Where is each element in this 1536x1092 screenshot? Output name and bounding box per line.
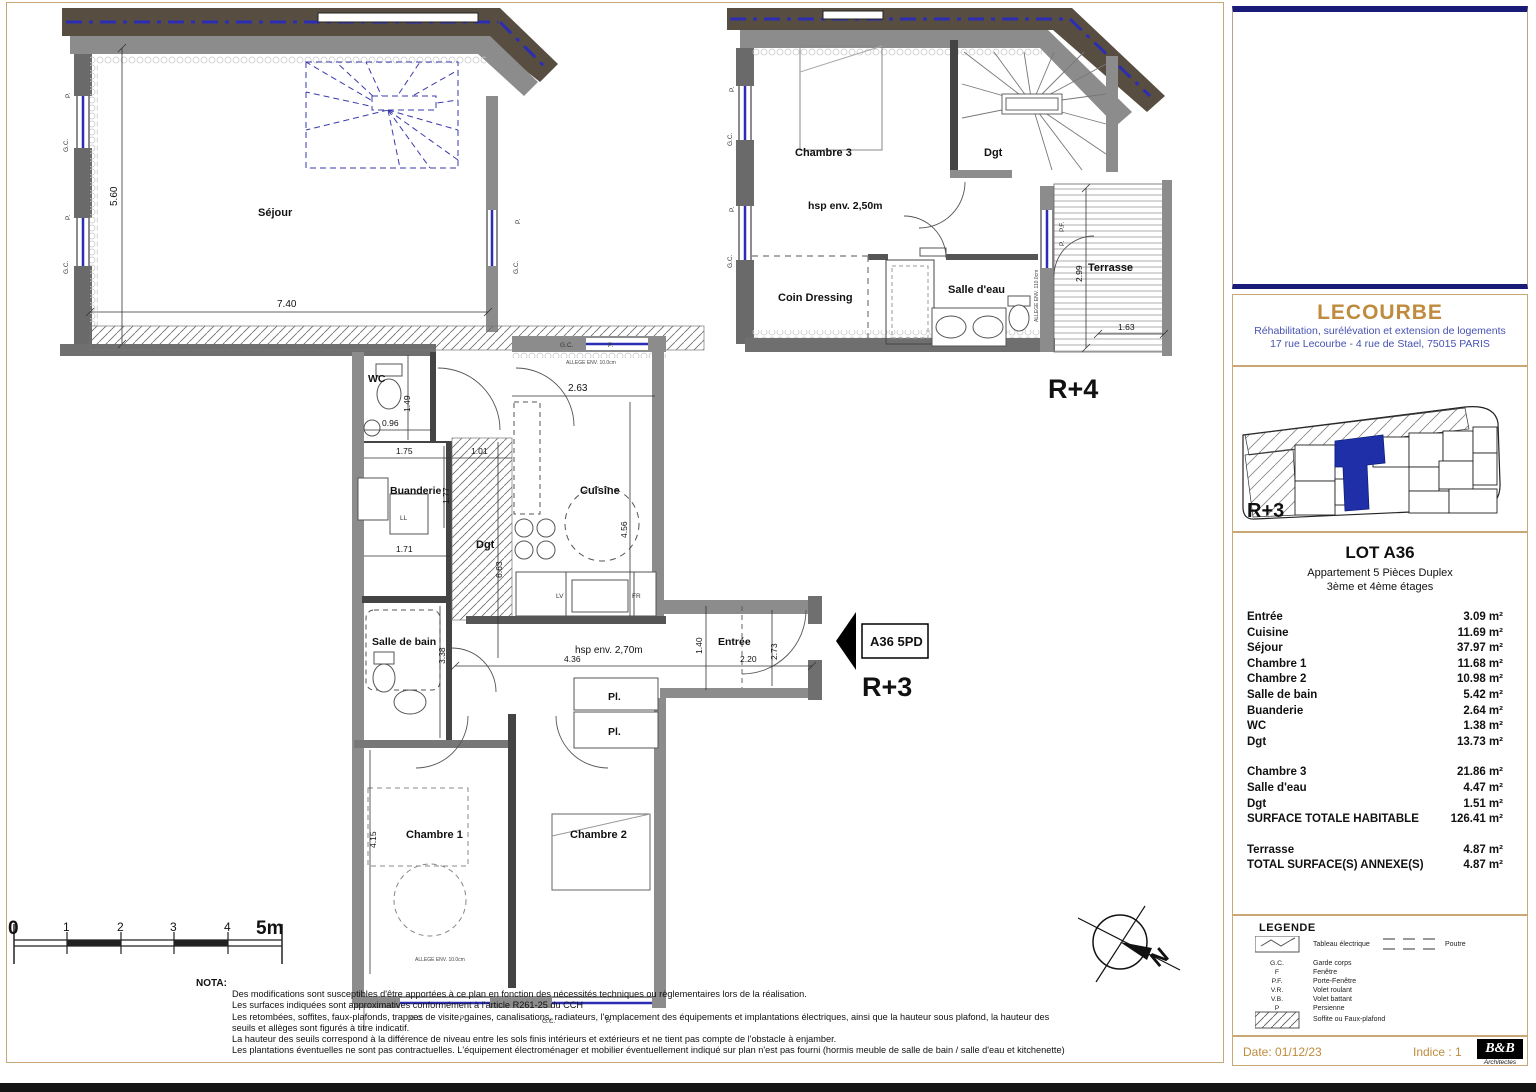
nota-line: Les surfaces indiquées sont approximativ…: [232, 1000, 1226, 1011]
room-label-sdb: Salle de bain: [372, 636, 436, 648]
table-row: Buanderie2.64 m²: [1233, 704, 1527, 720]
p-label-r4-w2: P.: [729, 207, 736, 212]
compass-rose: N: [1078, 906, 1180, 982]
dim-140: 1.40: [694, 637, 704, 654]
scale-0: 0: [8, 918, 19, 939]
project-title-box: LECOURBE Réhabilitation, surélévation et…: [1232, 294, 1528, 366]
room-name: Salle de bain: [1247, 688, 1317, 704]
pf-label-terrasse: P.F.: [1059, 221, 1066, 232]
dim-415: 4.15: [368, 831, 378, 848]
dim-273: 2.73: [769, 643, 779, 660]
table-row: Chambre 111.68 m²: [1233, 657, 1527, 673]
dim-299: 2.99: [1074, 265, 1084, 282]
room-name: Chambre 1: [1247, 657, 1306, 673]
legend-poutre: Poutre: [1445, 941, 1466, 948]
keyplan-drawing: R+3: [1233, 367, 1526, 530]
total-label: TOTAL SURFACE(S) ANNEXE(S): [1247, 858, 1424, 874]
gc-label-w3: G.C.: [513, 260, 520, 274]
footer-bar: Date: 01/12/23 Indice : 1 B&B Architecte…: [1232, 1036, 1528, 1066]
nota-line: Des modifications sont susceptibles d'êt…: [232, 989, 1226, 1000]
room-name: Séjour: [1247, 641, 1283, 657]
r4-level-label: R+4: [1048, 374, 1098, 404]
room-name: Entrée: [1247, 610, 1283, 626]
room-name: Salle d'eau: [1247, 781, 1307, 797]
total-area: 126.41 m²: [1451, 812, 1503, 828]
unit-tag-group: A36 5PD R+3: [836, 612, 928, 702]
room-area: 1.38 m²: [1463, 719, 1503, 735]
architect-logo-box: [1232, 6, 1528, 289]
legend-abbr: P.F.: [1255, 978, 1299, 985]
room-label-wc: WC: [368, 373, 386, 385]
scale-1: 1: [63, 920, 70, 934]
dim-560: 5.60: [109, 186, 120, 206]
room-name: Chambre 2: [1247, 672, 1306, 688]
table-row: Terrasse4.87 m²: [1233, 843, 1527, 859]
table-row: Chambre 210.98 m²: [1233, 672, 1527, 688]
dim-663: 6.63: [494, 561, 504, 578]
dim-436: 4.36: [564, 654, 581, 664]
nota-line: Les plantations éventuelles ne sont pas …: [232, 1045, 1226, 1056]
bottom-black-strip: [0, 1083, 1536, 1092]
legend-label: Garde corps: [1313, 960, 1352, 967]
room-label-cuisine: Cuisine: [580, 485, 620, 497]
room-area: 37.97 m²: [1457, 641, 1503, 657]
lot-floors: 3ème et 4ème étages: [1233, 581, 1527, 595]
dim-220: 2.20: [740, 654, 757, 664]
closet-label-2: Pl.: [608, 726, 621, 738]
dim-175: 1.75: [396, 446, 413, 456]
lot-info-box: LOT A36 Appartement 5 Pièces Duplex 3ème…: [1232, 532, 1528, 915]
north-label: N: [1145, 942, 1173, 971]
legend-label: Volet battant: [1313, 996, 1352, 1003]
room-label-entree: Entrée: [718, 636, 751, 648]
room-area: 10.98 m²: [1457, 672, 1503, 688]
dim-171: 1.71: [396, 544, 413, 554]
room-area: 21.86 m²: [1457, 765, 1503, 781]
room-name: Terrasse: [1247, 843, 1294, 859]
room-area: 2.64 m²: [1463, 704, 1503, 720]
room-name: Buanderie: [1247, 704, 1303, 720]
total-label: SURFACE TOTALE HABITABLE: [1247, 812, 1419, 828]
poutre-symbol: [1383, 939, 1435, 949]
nota-line: Les retombées, soffites, faux-plafonds, …: [232, 1012, 1226, 1023]
nota-block: NOTA: Des modifications sont susceptible…: [196, 978, 1226, 1056]
room-name: Dgt: [1247, 797, 1266, 813]
dim-263: 2.63: [568, 383, 588, 394]
table-row: Dgt1.51 m²: [1233, 797, 1527, 813]
hsp-annotation-r4: hsp env. 2,50m: [808, 200, 883, 212]
room-name: WC: [1247, 719, 1266, 735]
room-label-chambre1: Chambre 1: [406, 829, 463, 841]
table-row: Chambre 321.86 m²: [1233, 765, 1527, 781]
room-label-chambre2: Chambre 2: [570, 829, 627, 841]
keyplan-box: R+3: [1232, 366, 1528, 532]
gc-label-w2: G.C.: [63, 260, 70, 274]
architect-logo: B&B: [1477, 1039, 1523, 1059]
p-label-r4-w1: P.: [729, 87, 736, 92]
room-label-terrasse: Terrasse: [1088, 262, 1133, 274]
dishwasher-label: LV: [556, 593, 564, 600]
gc-label-cuisine: G.C.: [560, 342, 574, 349]
legend-soffite: Soffite ou Faux-plafond: [1313, 1016, 1385, 1023]
room-name: Cuisine: [1247, 626, 1289, 642]
room-area: 4.47 m²: [1463, 781, 1503, 797]
legend-label: Volet roulant: [1313, 987, 1352, 994]
soffite-symbol: [1255, 1012, 1299, 1028]
table-row-total-habitable: SURFACE TOTALE HABITABLE126.41 m²: [1233, 812, 1527, 828]
room-name: Dgt: [1247, 735, 1266, 751]
table-row: Entrée3.09 m²: [1233, 610, 1527, 626]
room-area: 11.69 m²: [1458, 626, 1503, 642]
architect-logo-sub: Architectes: [1477, 1059, 1523, 1066]
legend-label: Fenêtre: [1313, 969, 1337, 976]
lot-title: LOT A36: [1233, 543, 1527, 563]
dim-456: 4.56: [619, 521, 629, 538]
gc-label-r4-w1: G.C.: [727, 132, 734, 146]
indice-value: Indice : 1: [1413, 1045, 1462, 1059]
room-label-coin-dressing: Coin Dressing: [778, 292, 853, 304]
dim-740: 7.40: [277, 299, 297, 310]
legend-abbr: F: [1255, 969, 1299, 976]
legend-abbr: P: [1255, 1005, 1299, 1012]
project-name: LECOURBE: [1233, 301, 1527, 325]
table-row-total-annexe: TOTAL SURFACE(S) ANNEXE(S)4.87 m²: [1233, 858, 1527, 874]
unit-tag-label: A36 5PD: [870, 634, 923, 649]
table-row: Dgt13.73 m²: [1233, 735, 1527, 751]
dim-338: 3.38: [437, 647, 447, 664]
room-name: Chambre 3: [1247, 765, 1306, 781]
allege-label-chambre1: ALLEGE ENV. 10.0cm: [415, 957, 465, 963]
r3-plan: Séjour 5.60 7.40 WC 1.49 0.96 1.75 1.01 …: [60, 8, 928, 1030]
room-area: 4.87 m²: [1463, 843, 1503, 859]
legend-abbr: V.B.: [1255, 996, 1299, 1003]
p-label-cuisine: P.: [608, 342, 613, 349]
dim-101: 1.01: [471, 446, 488, 456]
table-row: WC1.38 m²: [1233, 719, 1527, 735]
allege-label-cuisine: ALLEGE ENV. 10.0cm: [566, 360, 616, 366]
washer-label: LL: [400, 515, 408, 522]
scale-3: 3: [170, 920, 177, 934]
total-area: 4.87 m²: [1463, 858, 1503, 874]
hsp-annotation-r3: hsp env. 2,70m: [575, 645, 643, 656]
scale-5m: 5m: [256, 918, 283, 939]
legend-label: Porte-Fenêtre: [1313, 978, 1356, 985]
dim-163: 1.63: [1118, 322, 1135, 332]
unit-arrow: [836, 612, 856, 670]
p-label-terrasse: P.: [1059, 241, 1066, 246]
lot-type: Appartement 5 Pièces Duplex: [1233, 567, 1527, 581]
p-label-w1: P.: [65, 93, 72, 98]
scale-bar: 0 1 2 3 4 5m: [8, 918, 283, 964]
r3-level-label: R+3: [862, 672, 912, 702]
r3-facade-band: [62, 8, 558, 96]
scale-2: 2: [117, 920, 124, 934]
dim-096: 0.96: [382, 418, 399, 428]
gc-label-r4-w2: G.C.: [727, 254, 734, 268]
room-label-dgt-r4: Dgt: [984, 147, 1003, 159]
p-label-w2: P.: [65, 215, 72, 220]
legend-title: LEGENDE: [1259, 922, 1316, 934]
room-label-chambre3: Chambre 3: [795, 147, 852, 159]
nota-line: seuils et allèges sont figurés à titre i…: [232, 1023, 1226, 1034]
p-label-w3: P.: [515, 219, 522, 224]
table-row: Salle d'eau4.47 m²: [1233, 781, 1527, 797]
room-label-sejour: Séjour: [258, 207, 293, 219]
plan-sheet: Séjour 5.60 7.40 WC 1.49 0.96 1.75 1.01 …: [0, 0, 1536, 1092]
room-label-dgt: Dgt: [476, 539, 495, 551]
legend-abbr: V.R.: [1255, 987, 1299, 994]
r4-plan: Chambre 3 hsp env. 2,50m Dgt Coin Dressi…: [727, 8, 1172, 404]
date-value: Date: 01/12/23: [1243, 1045, 1322, 1059]
scale-4: 4: [224, 920, 231, 934]
project-subtitle: Réhabilitation, surélévation et extensio…: [1233, 325, 1527, 338]
room-area: 13.73 m²: [1457, 735, 1503, 751]
dim-177: 1.77: [441, 487, 451, 504]
project-address: 17 rue Lecourbe - 4 rue de Stael, 75015 …: [1233, 338, 1527, 351]
allege-label-terrasse: ALLEGE ENV. 110.0cm: [1034, 270, 1040, 322]
legend-label: Persienne: [1313, 1005, 1345, 1012]
legend-tableau: Tableau électrique: [1313, 941, 1370, 948]
room-label-buanderie: Buanderie: [390, 485, 442, 497]
area-table: Entrée3.09 m² Cuisine11.69 m² Séjour37.9…: [1233, 610, 1527, 874]
keyplan-level-label: R+3: [1247, 500, 1284, 522]
r4-facade-band: [727, 8, 1165, 126]
room-area: 5.42 m²: [1463, 688, 1503, 704]
stair-projection: [306, 62, 458, 168]
room-label-salle-deau: Salle d'eau: [948, 284, 1005, 296]
room-area: 1.51 m²: [1463, 797, 1503, 813]
gc-label-w1: G.C.: [63, 138, 70, 152]
floor-plan-drawing: Séjour 5.60 7.40 WC 1.49 0.96 1.75 1.01 …: [0, 0, 1228, 1080]
nota-title: NOTA:: [196, 978, 227, 989]
legend-box: LEGENDE Tableau électrique Poutre G.C. G…: [1232, 915, 1528, 1036]
closet-label-1: Pl.: [608, 691, 621, 703]
room-area: 3.09 m²: [1463, 610, 1503, 626]
table-row: Cuisine11.69 m²: [1233, 626, 1527, 642]
table-row: Salle de bain5.42 m²: [1233, 688, 1527, 704]
fridge-label: FR: [632, 593, 641, 600]
nota-line: La hauteur des seuils correspond à la di…: [232, 1034, 1226, 1045]
dim-149: 1.49: [402, 395, 412, 412]
legend-abbr: G.C.: [1255, 960, 1299, 967]
table-row: Séjour37.97 m²: [1233, 641, 1527, 657]
room-area: 11.68 m²: [1458, 657, 1503, 673]
